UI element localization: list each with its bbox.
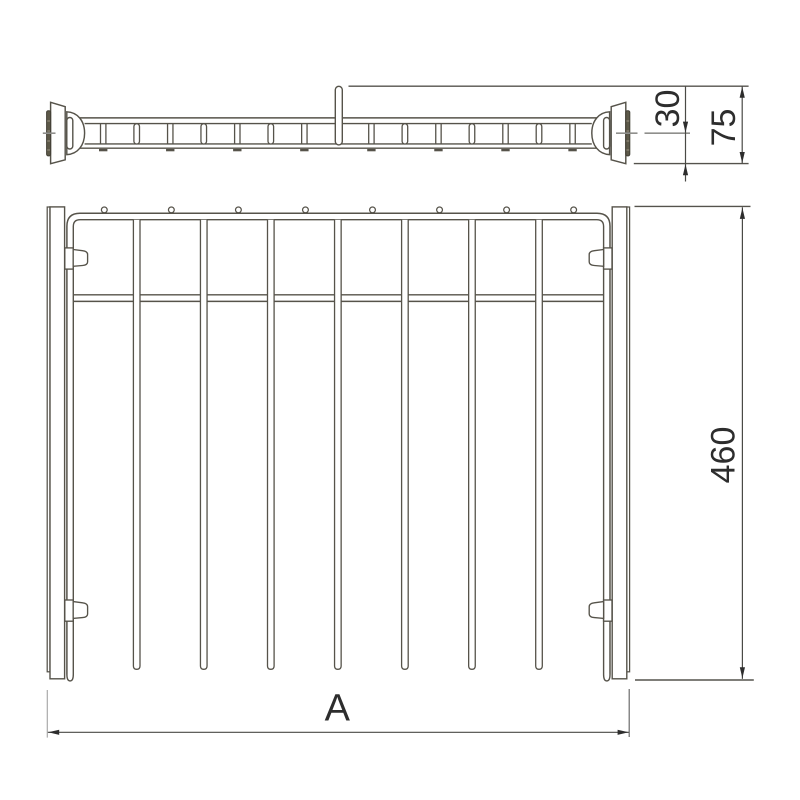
- svg-text:30: 30: [649, 90, 687, 128]
- svg-text:A: A: [325, 688, 351, 730]
- svg-text:460: 460: [705, 427, 743, 484]
- svg-text:75: 75: [705, 109, 743, 147]
